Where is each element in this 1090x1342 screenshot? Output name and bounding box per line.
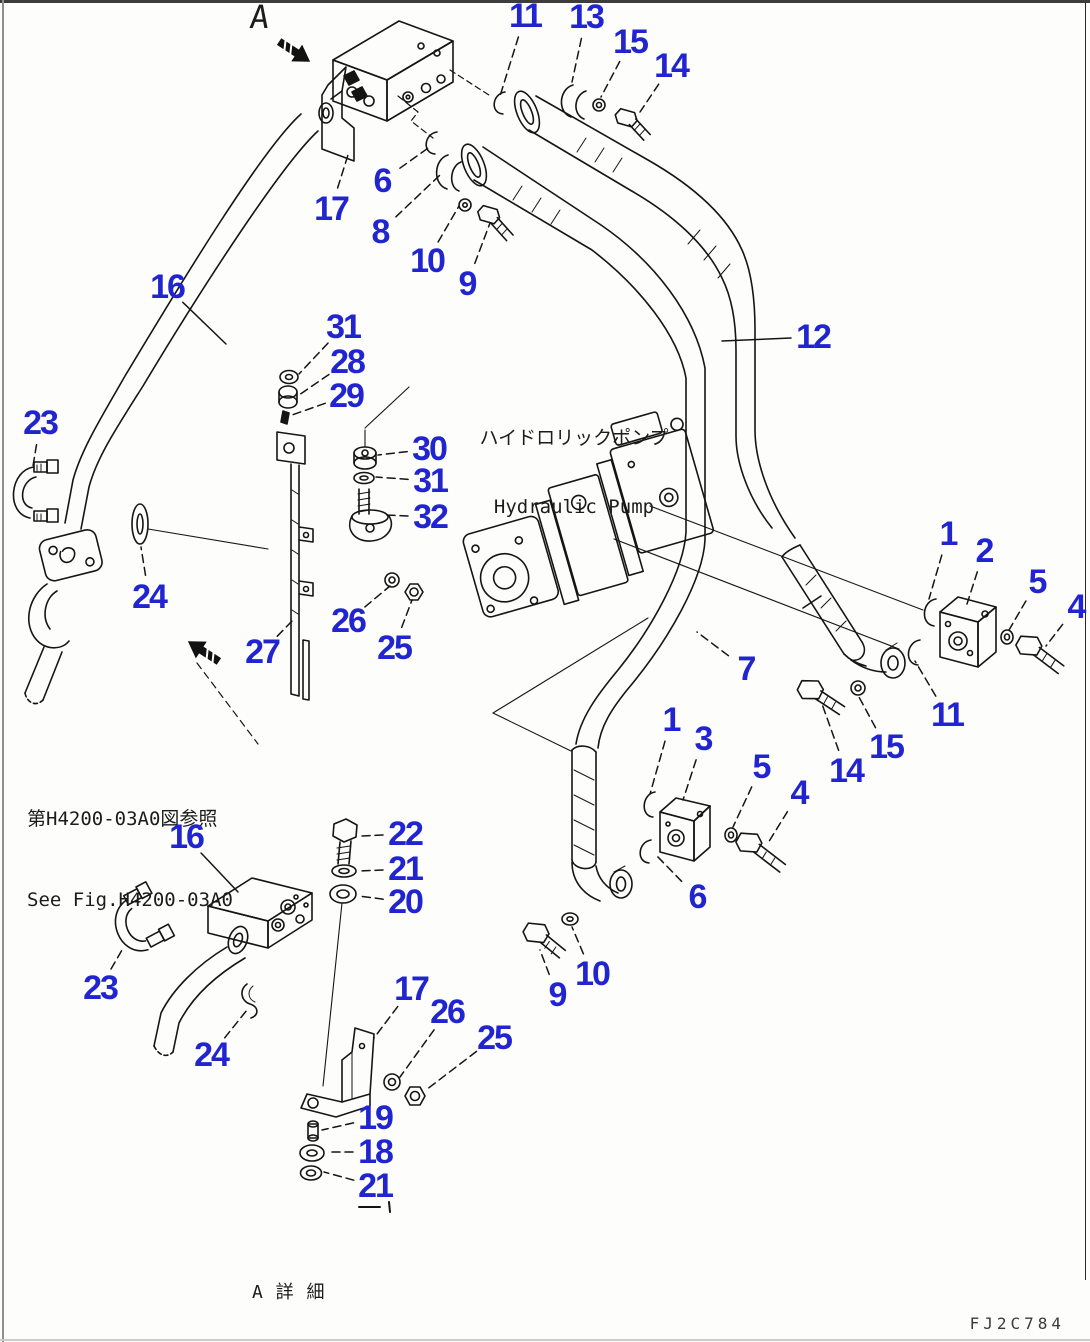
see-fig-arrow — [182, 633, 224, 670]
leader-4 — [768, 812, 787, 843]
leader-15 — [859, 697, 876, 728]
leader-4 — [1046, 624, 1063, 646]
callout-14: 14 — [654, 49, 688, 83]
leader-17 — [374, 1007, 398, 1038]
callout-26: 26 — [331, 604, 365, 638]
leader-11 — [500, 37, 518, 96]
leader-14 — [640, 84, 659, 112]
callout-1: 1 — [663, 703, 680, 737]
callout-26: 26 — [430, 995, 464, 1029]
leader-9 — [475, 223, 490, 263]
parts-diagram-page: A ハイドロリックポンプ Hydraulic Pump 第H4200-03A0図… — [0, 0, 1090, 1342]
leader-11 — [915, 661, 936, 696]
callout-4: 4 — [1068, 590, 1085, 624]
callout-5: 5 — [753, 750, 770, 784]
callout-24: 24 — [132, 580, 166, 614]
callout-30: 30 — [412, 432, 446, 466]
callout-1: 1 — [940, 517, 957, 551]
leader-12 — [722, 338, 791, 341]
leader-5 — [1009, 601, 1026, 630]
callout-11: 11 — [931, 698, 963, 732]
leader-1 — [650, 741, 665, 794]
leader-3 — [683, 760, 696, 800]
piping-line-drawing — [0, 0, 1090, 1342]
callout-20: 20 — [388, 885, 422, 919]
callout-5: 5 — [1029, 565, 1046, 599]
callout-23: 23 — [23, 406, 57, 440]
o-ring-6-center — [640, 840, 651, 863]
callout-10: 10 — [410, 244, 444, 278]
callout-2: 2 — [976, 534, 993, 568]
callout-6: 6 — [374, 164, 391, 198]
leader-6 — [400, 146, 431, 168]
callout-6: 6 — [689, 880, 706, 914]
callout-7: 7 — [738, 652, 755, 686]
o-ring-11-top — [494, 92, 505, 114]
leader-30 — [378, 452, 407, 455]
leader-1 — [929, 555, 942, 599]
callout-31: 31 — [413, 464, 447, 498]
callout-4: 4 — [791, 776, 808, 810]
leader-2 — [967, 572, 977, 604]
callout-29: 29 — [329, 379, 363, 413]
leader-14 — [822, 704, 839, 750]
o-ring-6-top — [426, 132, 437, 154]
leader-24 — [225, 1010, 247, 1038]
callout-18: 18 — [358, 1135, 392, 1169]
leader-28 — [299, 375, 329, 396]
callout-32: 32 — [413, 500, 447, 534]
callout-21: 21 — [388, 852, 422, 886]
detail-a-caption-jp: A 詳 細 — [252, 1280, 347, 1305]
callout-16: 16 — [169, 820, 203, 854]
leader-13 — [572, 39, 581, 83]
callout-17: 17 — [314, 192, 348, 226]
callout-14: 14 — [829, 754, 863, 788]
hydraulic-pump-label-en: Hydraulic Pump — [448, 496, 700, 519]
hose-flange-upper — [494, 85, 656, 142]
leader-26 — [400, 1030, 434, 1077]
callout-10: 10 — [575, 957, 609, 991]
o-ring-1-center — [644, 792, 655, 817]
hydraulic-pump-label-jp: ハイドロリックポンプ — [448, 427, 700, 450]
bolt-9-center — [519, 919, 571, 959]
callout-16: 16 — [150, 270, 184, 304]
see-fig-reference: 第H4200-03A0図参照 See Fig.H4200-03A0 — [27, 752, 233, 968]
u-bolt-23-top — [13, 460, 58, 522]
clamp-24-top — [132, 504, 268, 549]
bolt-14-top — [611, 105, 656, 141]
figure-code: FJ2C784 — [935, 1314, 1065, 1333]
pipe-16-top — [25, 114, 318, 704]
callout-12: 12 — [796, 320, 830, 354]
callout-19: 19 — [358, 1101, 392, 1135]
bracket-27 — [277, 432, 313, 700]
callout-15: 15 — [613, 25, 647, 59]
callout-28: 28 — [330, 345, 364, 379]
callout-8: 8 — [372, 215, 389, 249]
leader-10 — [572, 927, 583, 954]
bolt-4-right — [1012, 632, 1070, 675]
see-fig-leader — [197, 663, 258, 744]
callout-17: 17 — [394, 972, 428, 1006]
callout-24: 24 — [194, 1038, 228, 1072]
leader-10 — [438, 206, 459, 242]
leader-31 — [376, 477, 408, 479]
leader-16 — [183, 302, 226, 344]
leader-15 — [601, 62, 620, 98]
leader-19 — [322, 1123, 354, 1130]
leader-32 — [385, 515, 408, 516]
leader-25 — [402, 600, 412, 627]
hardware-31-28-29 — [279, 371, 298, 425]
callout-27: 27 — [245, 635, 279, 669]
leader-7 — [697, 632, 728, 656]
leader-25 — [426, 1051, 477, 1090]
right-sleeve-and-elbow-2 — [782, 545, 1070, 715]
callout-11: 11 — [509, 0, 541, 33]
center-sleeve-and-elbow-3 — [519, 746, 792, 959]
callout-15: 15 — [869, 730, 903, 764]
bolt-14-right — [794, 676, 849, 715]
callout-25: 25 — [477, 1021, 511, 1055]
detail-a-caption: A 詳 細 Detail A — [252, 1230, 347, 1342]
leader-5 — [733, 787, 752, 827]
bolt-9-top — [472, 202, 520, 242]
leader-21 — [359, 870, 383, 871]
callout-3: 3 — [695, 722, 712, 756]
bolt-22-stack — [323, 819, 357, 1086]
leader-26 — [365, 586, 390, 607]
leader-29 — [292, 403, 325, 415]
callout-31: 31 — [326, 310, 360, 344]
see-fig-reference-en: See Fig.H4200-03A0 — [27, 887, 233, 914]
callout-13: 13 — [569, 0, 603, 34]
callout-21: 21 — [358, 1169, 392, 1203]
leader-22 — [362, 835, 383, 836]
leader-8 — [396, 175, 440, 217]
washer-26-nut-25 — [385, 573, 423, 600]
o-ring-1-right — [924, 599, 936, 626]
leader-21 — [324, 1172, 354, 1180]
valve-block-top — [319, 21, 453, 123]
leader-6 — [655, 854, 682, 881]
clamp-8-half — [437, 155, 448, 189]
leader-20 — [359, 896, 383, 899]
view-a-label: A — [248, 0, 271, 34]
callout-23: 23 — [83, 971, 117, 1005]
hydraulic-pump-label: ハイドロリックポンプ Hydraulic Pump — [448, 381, 700, 565]
leader-17 — [338, 155, 348, 188]
bolt-4-center — [731, 829, 791, 873]
view-direction-arrow — [274, 33, 316, 70]
callout-22: 22 — [388, 817, 422, 851]
callout-9: 9 — [459, 267, 476, 301]
leader-31 — [299, 343, 328, 374]
callout-9: 9 — [549, 978, 566, 1012]
leader-24 — [141, 547, 146, 575]
leader-9 — [540, 950, 549, 974]
callout-25: 25 — [377, 631, 411, 665]
o-ring-11-right — [908, 640, 920, 665]
